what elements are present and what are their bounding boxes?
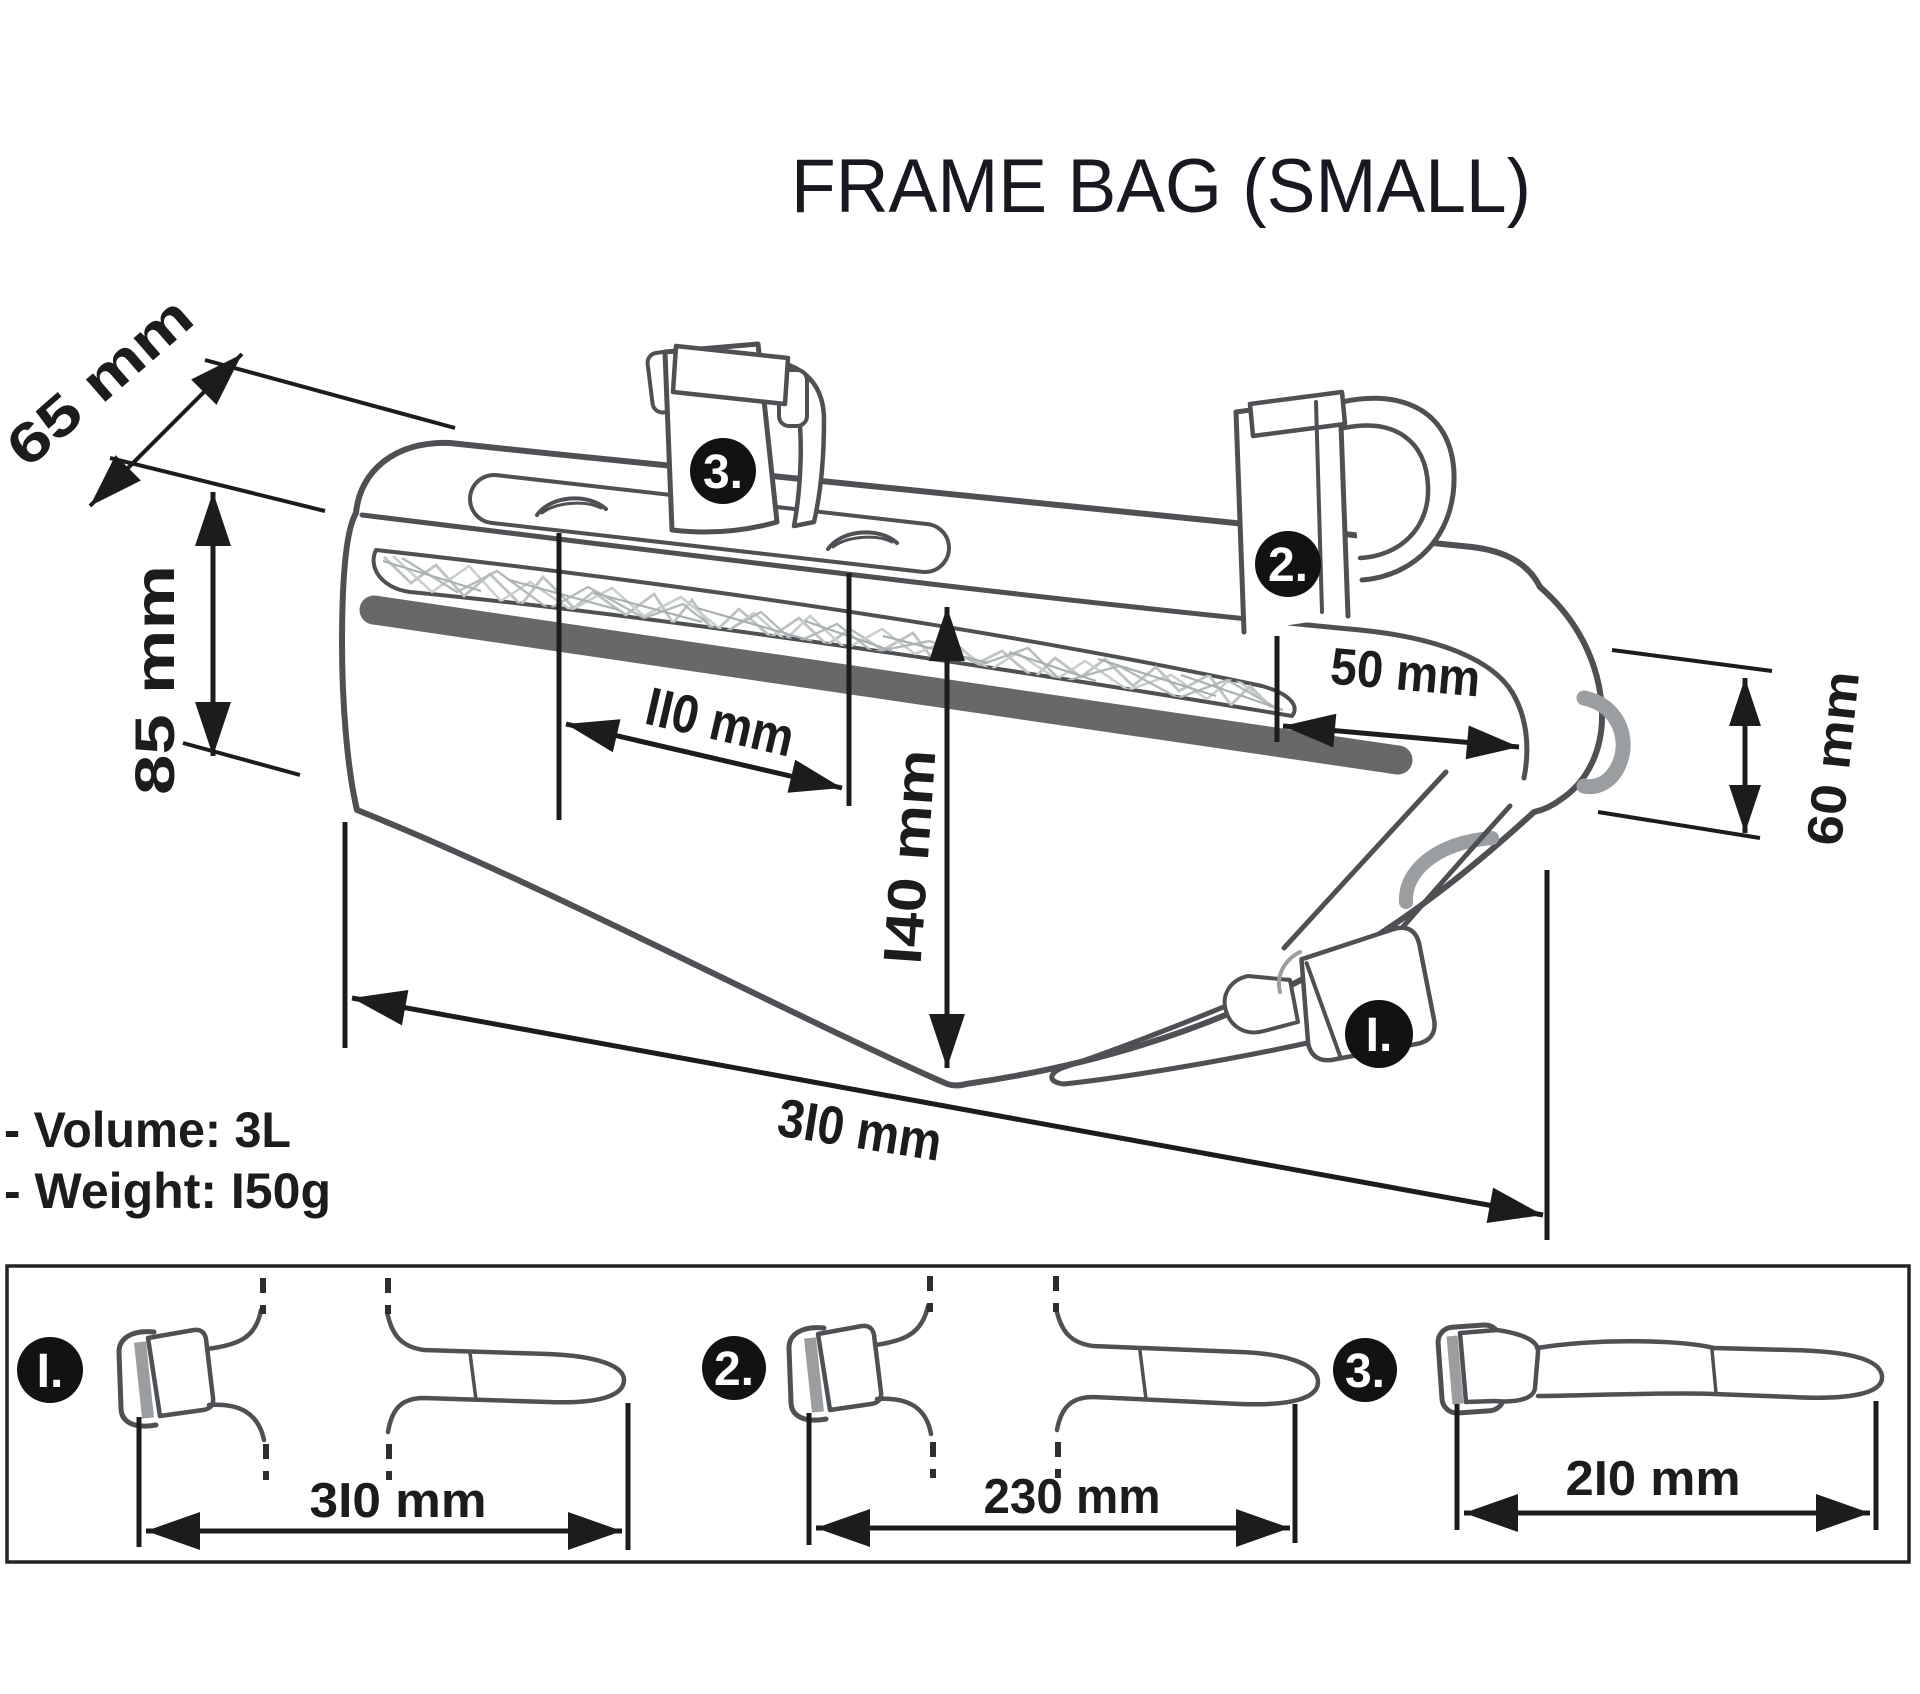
svg-text:2.: 2.	[714, 1343, 754, 1396]
svg-text:230 mm: 230 mm	[984, 1470, 1161, 1524]
svg-text:3.: 3.	[703, 446, 743, 499]
svg-text:- Weight: I50g: - Weight: I50g	[4, 1163, 331, 1219]
svg-text:3.: 3.	[1345, 1345, 1385, 1398]
svg-text:3I0 mm: 3I0 mm	[310, 1474, 487, 1528]
svg-text:I.: I.	[1366, 1009, 1393, 1062]
svg-text:2I0 mm: 2I0 mm	[1566, 1452, 1741, 1506]
svg-text:I.: I.	[37, 1345, 64, 1398]
svg-text:85 mm: 85 mm	[123, 565, 186, 795]
svg-text:FRAME BAG (SMALL): FRAME BAG (SMALL)	[791, 144, 1531, 229]
svg-text:2.: 2.	[1268, 539, 1308, 592]
svg-text:- Volume: 3L: - Volume: 3L	[4, 1102, 291, 1158]
